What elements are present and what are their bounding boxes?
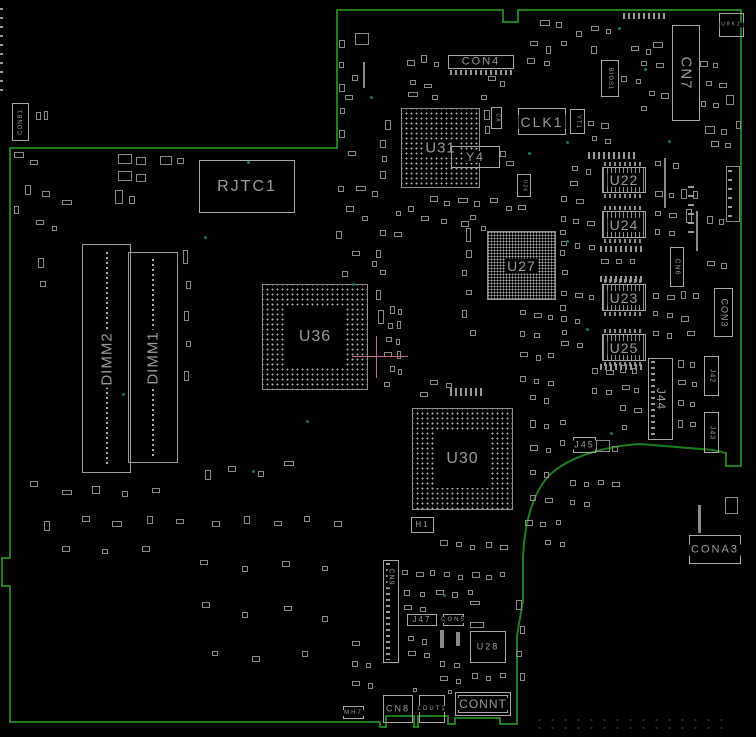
small-component [544,424,549,429]
small-component [402,570,408,575]
small-component [118,171,132,181]
component-con4[interactable]: CON4 [448,55,514,69]
small-component [380,171,386,179]
component-label-j45: J45 [572,441,597,450]
small-component [466,250,472,258]
component-label-ca: CA [494,112,499,125]
small-component [205,470,211,480]
small-component [177,158,184,164]
small-component [520,376,526,382]
component-u30[interactable]: U30 [412,408,513,510]
small-component [183,250,188,264]
small-component [540,522,546,527]
small-component [634,388,639,393]
small-component [576,199,584,204]
small-component [396,339,400,345]
small-component [622,385,630,390]
small-component [407,60,415,66]
component-label-u27: U27 [505,259,538,273]
small-component [212,521,220,527]
small-component [345,95,353,100]
small-component [282,561,290,567]
small-component [390,366,395,372]
small-component [577,343,583,348]
via-dot [352,283,355,286]
small-component [612,446,618,452]
small-component [653,293,659,299]
small-component [274,521,282,526]
pin-strip [688,186,694,234]
small-component [592,388,597,394]
component-cn8[interactable]: CN8 [383,695,413,723]
small-component [713,103,719,108]
small-component [560,305,566,311]
small-component [462,270,467,276]
via-dot [528,152,531,155]
small-component [606,370,614,375]
small-component [530,395,536,400]
component-label-connt: CONNT [457,698,509,710]
small-component [530,495,536,501]
component-u28[interactable]: U28 [470,631,506,663]
small-component [606,390,612,395]
component-label-j42: J42 [708,367,715,385]
component-yt1[interactable]: YT1 [570,109,585,134]
small-component [678,420,683,428]
small-component [584,502,590,507]
component-conb1[interactable]: CONB1 [12,103,29,141]
small-component [52,226,57,231]
small-component [481,95,487,100]
small-component [620,365,626,373]
component-y4[interactable]: Y4 [451,146,500,168]
small-component [112,521,122,527]
small-component [687,331,695,336]
small-component [42,191,50,197]
small-component [719,83,727,88]
pad-dot-field [533,716,731,732]
small-component [486,676,491,681]
component-label-dimm2: DIMM2 [99,330,114,387]
small-component [622,425,627,430]
small-component [44,111,48,120]
small-component [408,636,414,641]
component-con3[interactable]: CON3 [714,288,733,337]
small-component [342,271,348,277]
small-component [673,163,679,169]
small-component [655,211,661,216]
component-lout1[interactable]: LOUT1 [419,695,445,723]
small-component [544,398,549,404]
component-u26[interactable]: U26 [517,174,531,197]
small-component [655,229,660,235]
small-component [380,230,386,236]
small-component [454,663,460,668]
component-label-conb1: CONB1 [18,107,24,137]
component-cn7[interactable]: CN7 [672,25,700,121]
small-component [560,420,566,425]
component-label-yt1: YT1 [575,112,581,130]
small-component [440,540,448,546]
small-component [382,156,387,162]
small-component [92,486,100,494]
component-cn9[interactable]: CN9 [383,560,399,663]
small-component [725,143,731,148]
small-component [546,46,551,54]
small-component [470,330,476,336]
small-component [408,651,416,656]
component-h1[interactable]: H1 [411,517,434,533]
small-component [304,516,310,522]
small-component [573,219,579,224]
small-component [366,663,371,668]
small-component [228,466,236,472]
component-label-con5: CON5 [439,617,468,623]
small-component [700,61,708,67]
small-component [118,154,132,164]
small-component [678,400,684,406]
small-component [540,20,550,26]
small-component [62,200,72,205]
component-u24[interactable]: U24 [602,211,646,238]
pin-strip [450,388,484,396]
small-component [587,221,595,226]
small-component [440,661,445,667]
small-component [630,259,635,264]
small-component [589,245,595,250]
small-component [690,422,696,427]
small-component [690,402,695,407]
small-component [472,673,478,679]
small-component [470,545,475,550]
component-j43[interactable]: J43 [704,412,719,453]
small-component [575,319,580,324]
component-dimm2[interactable]: DIMM2 [82,244,131,473]
small-component [384,382,390,387]
small-component [394,232,402,237]
small-component [561,291,567,296]
small-component [36,112,41,120]
via-dot [566,141,569,144]
component-label-u36: U36 [297,329,333,345]
small-component [408,206,414,212]
small-component [368,683,373,689]
small-component [136,157,146,165]
small-component [548,381,554,386]
small-component [416,572,424,577]
small-component [634,408,642,413]
small-component [669,213,677,218]
component-label-u28: U28 [475,643,502,652]
pin-strip [728,170,732,218]
small-component [397,351,401,359]
small-component [561,316,567,322]
small-component [430,570,435,576]
small-component [212,651,218,656]
small-component [362,216,368,221]
small-component [202,602,210,608]
component-label-u22: U22 [608,173,641,187]
small-component [462,310,467,318]
small-component [458,198,468,203]
small-component [242,566,248,572]
small-component [152,488,160,493]
pin-strip [623,13,668,19]
component-label-cn9: CN9 [388,567,395,588]
small-component [184,371,189,381]
component-label-u23: U23 [608,291,641,305]
small-component [669,231,675,236]
small-component [176,519,184,524]
small-component [605,139,611,144]
small-component [681,189,687,199]
small-component [136,174,146,182]
component-label-clk1: CLK1 [518,115,565,129]
component-j44[interactable]: J44 [648,358,673,440]
small-component [556,520,561,525]
small-component [466,290,472,295]
small-component [520,352,528,357]
small-component [560,230,566,235]
small-component [444,201,450,206]
small-component [485,126,490,134]
small-component [352,681,360,686]
small-component [408,92,418,97]
small-component [376,250,381,258]
small-component [420,607,426,612]
via-dot [247,161,250,164]
small-component [490,198,498,203]
component-con5[interactable]: CON5 [443,614,464,626]
component-rjtc1[interactable]: RJTC1 [199,160,295,213]
via-dot [566,240,569,243]
via-dot [306,420,309,423]
small-component [102,549,108,554]
small-component [36,220,44,225]
component-u23[interactable]: U23 [602,284,646,311]
small-component [481,226,486,231]
small-component [420,392,428,397]
small-component [527,58,535,64]
small-component [616,259,622,264]
pin-strip [600,246,644,252]
component-j42[interactable]: J42 [704,356,719,396]
component-u27[interactable]: U27 [487,231,556,300]
small-component [456,679,461,684]
small-component [486,542,492,548]
small-component [632,368,637,374]
small-component [621,76,627,82]
small-component [115,190,123,204]
small-component [396,211,401,216]
trace-line [456,632,460,646]
small-component [690,362,695,368]
small-component [620,405,626,411]
small-component [422,639,427,645]
small-component [355,33,369,45]
small-component [339,130,345,138]
component-label-h1: H1 [413,521,431,529]
small-component [520,673,525,681]
highlight-crosshair [352,356,408,357]
small-component [500,572,505,577]
small-component [430,196,438,202]
small-component [470,601,480,605]
component-dimm1[interactable]: DIMM1 [128,252,178,463]
small-component [692,382,697,387]
small-component [678,380,686,385]
component-label-j43: J43 [708,423,715,441]
small-component [38,258,44,268]
small-component [706,81,712,86]
small-component [470,215,476,220]
small-component [534,333,540,338]
small-component [339,62,344,68]
component-u36[interactable]: U36 [262,284,368,390]
small-component [667,313,673,318]
small-component [200,560,208,565]
component-label-con4: CON4 [460,57,503,68]
small-component [334,521,342,527]
small-component [372,261,377,267]
component-bios1[interactable]: BIOS1 [601,60,619,97]
small-component [701,101,706,107]
small-component [424,84,432,88]
small-component [516,651,522,657]
component-cn6[interactable]: CN6 [670,247,684,287]
small-component [520,331,525,337]
small-component [186,281,191,289]
small-component [520,310,526,315]
small-component [470,622,484,628]
small-component [711,141,719,147]
small-component [560,542,565,547]
small-component [681,291,686,299]
small-component [520,626,525,634]
small-component [655,161,661,166]
component-u25[interactable]: U25 [602,334,646,361]
small-component [721,263,727,269]
small-component [336,231,342,239]
small-component [561,216,566,222]
small-component [584,482,589,487]
small-component [385,120,391,130]
small-component [397,321,401,329]
small-component [707,216,713,224]
small-component [252,656,260,662]
component-u22[interactable]: U22 [602,167,646,193]
small-component [430,380,438,385]
small-component [530,41,538,46]
board-canvas[interactable]: CONB1RJTC1DIMM2DIMM1U31CON4Y4CLK1CAYT1BI… [0,0,756,737]
small-component [466,228,471,242]
small-component [424,653,430,658]
small-component [486,575,492,580]
small-component [561,341,569,346]
small-component [653,42,663,48]
pin-strip [588,152,638,159]
via-dot [668,140,671,143]
small-component [612,482,620,487]
small-component [456,542,462,547]
small-component [669,193,674,198]
small-component [452,592,458,598]
component-label-cona3: CONA3 [689,544,741,555]
small-component [649,91,655,96]
small-component [258,471,264,477]
small-component [30,160,38,165]
component-label-u24: U24 [608,218,641,232]
component-u8k2[interactable]: U8K2 [719,13,744,37]
small-component [534,313,542,318]
small-component [322,566,328,571]
small-component [560,440,565,446]
small-component [378,310,384,324]
small-component [653,311,658,316]
small-component [339,84,345,92]
component-label-cn6: CN6 [674,256,681,277]
small-component [398,369,402,375]
component-connt[interactable]: CONNT [455,692,511,716]
small-component [546,448,551,453]
component-j45[interactable]: J45 [573,437,596,453]
small-component [655,191,663,197]
small-component [380,270,386,275]
small-component [556,22,562,28]
pin-strip [450,70,512,75]
via-dot [443,594,446,597]
small-component [588,121,594,126]
small-component [534,379,539,384]
small-component [14,206,19,214]
small-component [352,641,360,646]
component-label-u26: U26 [522,177,527,193]
small-component [606,29,611,34]
small-component [736,121,741,129]
component-label-rjtc1: RJTC1 [215,179,279,195]
small-component [721,129,727,135]
small-component [500,545,508,550]
small-component [536,355,541,361]
small-component [40,281,46,287]
small-component [500,673,506,678]
component-label-u30: U30 [444,451,480,467]
component-label-lout1: LOUT1 [415,706,448,712]
component-clk1[interactable]: CLK1 [518,108,566,135]
via-dot [252,470,255,473]
via-dot [610,432,613,435]
component-label-j47: J47 [411,616,434,624]
small-component [372,191,378,197]
component-j47[interactable]: J47 [407,614,437,626]
small-component [561,41,567,46]
component-ca[interactable]: CA [491,107,502,129]
component-cona3[interactable]: CONA3 [689,535,741,564]
small-component [678,360,684,368]
small-component [25,185,31,195]
component-mh7[interactable]: MH7 [343,706,364,719]
small-component [575,243,580,249]
trace-line [363,62,365,88]
small-component [719,219,724,225]
small-component [444,572,450,577]
small-component [530,420,536,428]
small-component [352,251,360,256]
small-component [44,521,50,531]
small-component [421,216,429,221]
small-component [413,688,417,692]
small-component [656,63,664,68]
